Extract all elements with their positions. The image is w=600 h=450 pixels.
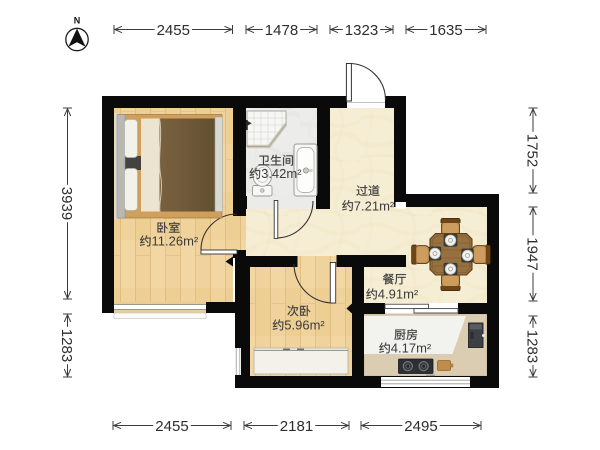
svg-text:1283: 1283 [58, 329, 75, 362]
svg-text:2495: 2495 [404, 418, 437, 435]
svg-text:1635: 1635 [429, 22, 462, 39]
svg-text:N: N [74, 16, 81, 26]
svg-text:7.21m²: 7.21m² [354, 198, 395, 213]
svg-text:3939: 3939 [58, 187, 75, 220]
svg-text:2455: 2455 [157, 22, 190, 39]
svg-text:1323: 1323 [345, 22, 378, 39]
svg-text:4.17m²: 4.17m² [391, 341, 432, 356]
svg-text:1947: 1947 [524, 237, 541, 270]
svg-text:5.96m²: 5.96m² [284, 318, 325, 333]
svg-text:1752: 1752 [524, 134, 541, 167]
svg-text:2181: 2181 [280, 418, 313, 435]
svg-text:4.91m²: 4.91m² [378, 287, 419, 302]
svg-text:11.26m²: 11.26m² [152, 234, 199, 249]
svg-text:2455: 2455 [155, 418, 188, 435]
svg-text:1283: 1283 [524, 330, 541, 363]
svg-text:1478: 1478 [265, 22, 298, 39]
svg-text:3.42m²: 3.42m² [261, 166, 302, 181]
